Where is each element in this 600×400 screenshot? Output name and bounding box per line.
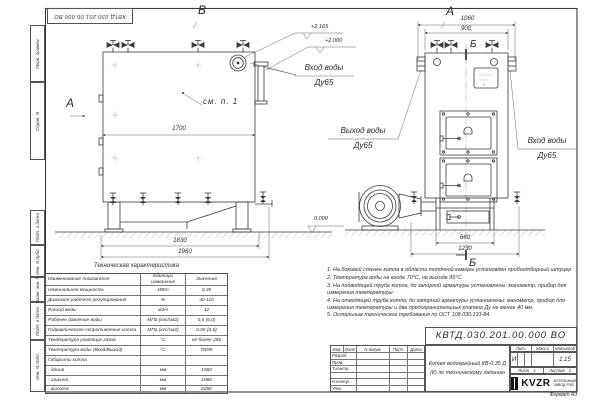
col-izm: Изм. [331,346,344,352]
table-row: - высотамм2050 [46,386,227,393]
lit-header: Лит. [511,346,532,351]
scale-value: 1:15 [554,353,576,366]
row-tkontr: Т.контр. [331,366,357,372]
col-list: Лист [344,346,357,352]
table-row: Номинальная мощностьМВт0,35 [46,286,227,296]
elevation-2000: +2.000 [325,39,342,45]
tech-table-header: Наименование показателя Единицы измерени… [46,274,227,286]
side-view [55,41,332,238]
titleblock-lit-mass-scale-header: Лит. Масса Масштаб [510,345,577,352]
section-letter-b-top: Б [470,40,477,50]
doc-number: КВТД.030.201.00.000 ВО [436,331,566,341]
elevation-2165: +2.165 [311,25,328,31]
notes-block: 1. На боковой стенке котла в области топ… [327,267,576,320]
logo-text: KVZR [521,378,550,389]
dim-1830: 1830 [146,238,214,244]
margin-field-sprav: Справ. N [30,82,45,160]
company-name: КОТЕЛЬНЫЙ ЗАВОД РЭП [553,379,576,388]
margin-field-vzam-inv: Взам. инв. N [30,277,45,302]
note-item: 4. На отводящей трубе котла, до запорной… [327,298,576,312]
sheets-cell: Листов2 [544,368,576,373]
table-row: Температура уходящих газов°Сне более 280 [46,336,227,346]
titleblock-lit-mass-scale-values: И 1:15 [510,352,577,367]
lit-value: И [511,353,518,366]
side-inlet-dn: Ду65 [294,79,354,87]
note-item: 2. Температура воды на входе 70°С, на вы… [327,275,576,282]
margin-field-inv-dubl: Инв. N дубл. [30,245,45,277]
col-podp: Подп. [390,346,408,352]
margin-field-inv-podl: Инв. N подл. [30,340,45,392]
table-row: Диапазон рабочего регулирования%40-110 [46,296,227,306]
row-razrab: Разраб. [331,353,357,359]
note-item: 3. На подводящей трубе котла, до запорно… [327,283,576,297]
view-letter-b: В [198,4,206,16]
dim-1060: 1060 [430,16,505,22]
row-blank [331,373,357,379]
front-outlet-label: Выход воды [328,127,398,135]
table-row: Гидравлическое сопротивление котлаМПа (к… [46,326,227,336]
tech-table: Наименование показателя Единицы измерени… [45,273,228,394]
scale-header: Масштаб [554,346,576,351]
dim-1230: 1230 [430,246,500,252]
col-dokum: N докум. [357,346,390,352]
rotated-doc-stamp: КВТД.030.201.00.000 ВО [47,8,133,24]
view-letter-a-side: А [66,97,74,109]
sheet-cell: Лист1 [511,368,544,373]
format-label: Формат А3 [500,393,577,398]
front-outlet-dn: Ду65 [328,142,398,150]
titleblock-doc-number-cell: КВТД.030.201.00.000 ВО [425,327,577,345]
titleblock-logo-cell: KVZR КОТЕЛЬНЫЙ ЗАВОД РЭП [510,374,577,392]
dim-1960: 1960 [151,249,219,255]
margin-field-podp-data-2: Подп. и дата [30,302,45,340]
side-inlet-label: Вход воды [294,64,354,72]
dimensions [70,21,576,260]
rotated-doc-number: КВТД.030.201.00.000 ВО [54,13,126,19]
product-title: Котел водогрейный КВ-0,35 Д (К) по техни… [428,360,507,376]
titleblock-sheet-row: Лист1 Листов2 [510,367,577,374]
row-utv: Утв. [331,386,357,392]
table-row: Расход водым3/ч12 [46,306,227,316]
col-data: Дата [408,346,424,352]
drawing-sheet: КВТД.030.201.00.000 ВО Перв. примен. Спр… [0,0,600,400]
dim-660: 660 [430,235,500,241]
table-row: - ширинамм1060 [46,376,227,386]
front-view [345,41,545,261]
see-item-callout: см. п. 1 [203,98,238,106]
front-inlet-label: Вход воды [518,137,576,145]
margin-field-podp-data-1: Подп. и дата [30,210,45,245]
tech-table-title: Техническая характеристика [45,263,228,269]
mass-header: Масса [532,346,554,351]
row-nkontr: Н.контр. [331,379,357,385]
elevation-0000: 0.000 [314,217,328,223]
table-row: - длинамм1960 [46,366,227,376]
front-inlet-dn: Ду65 [518,152,576,160]
table-row: Температура воды (Вход/Выход)°С70/95 [46,346,227,356]
note-item: 1. На боковой стенке котла в области топ… [327,267,576,274]
mass-value [532,353,554,366]
kvzr-logo-icon [511,377,518,390]
table-row: Габариты котла [46,356,227,366]
note-item: 5. Остальные технические требования по О… [327,312,576,319]
margin-field-perv-primen: Перв. примен. [30,25,45,82]
dim-900: 900 [430,26,502,32]
dim-1700: 1700 [145,126,213,132]
titleblock-product-title-cell: Котел водогрейный КВ-0,35 Д (К) по техни… [425,345,510,392]
row-prov: Пров. [331,360,357,366]
table-row: Рабочее давление водыМПа (кгс/см2)0,6 (6… [46,316,227,326]
titleblock-left-columns: Изм. Лист N докум. Подп. Дата Разраб. Пр… [330,345,425,392]
